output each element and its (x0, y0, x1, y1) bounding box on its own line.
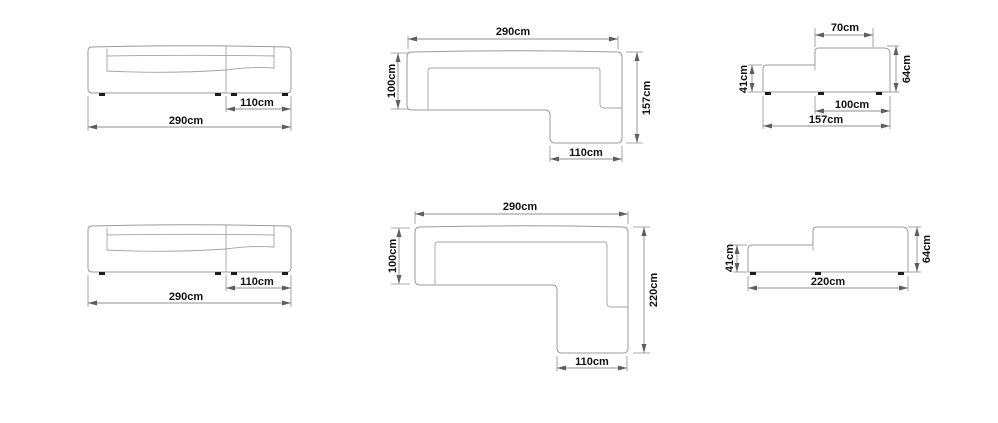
dim-seat-height: 41cm (738, 65, 762, 93)
seat-line (107, 247, 274, 252)
dim-label: 157cm (641, 81, 653, 115)
dim-label: 290cm (169, 115, 203, 127)
dim-label: 41cm (724, 244, 736, 272)
dim-label: 110cm (569, 147, 603, 159)
sofa-dimension-sheet: 110cm 290cm 290cm 100cm 1 (0, 0, 998, 423)
dim-chaise-width: 110cm (226, 275, 291, 307)
dim-label: 290cm (169, 291, 203, 303)
dim-total-width: 290cm (415, 201, 628, 224)
backrest-top-line (107, 234, 274, 235)
dim-label: 100cm (386, 64, 398, 98)
dim-back-height: 64cm (887, 46, 913, 92)
seat-inner-line (428, 68, 622, 110)
front-view-157: 110cm 290cm (88, 46, 291, 131)
dim-label: 70cm (831, 22, 859, 34)
dim-label: 41cm (738, 65, 750, 93)
seat-line (107, 68, 274, 73)
dim-label: 100cm (835, 99, 869, 111)
dim-label: 220cm (648, 273, 660, 307)
front-view-220: 110cm 290cm (88, 225, 291, 307)
side-view-220: 41cm 64cm 220cm (724, 227, 933, 291)
dim-depth-right: 220cm (633, 227, 660, 353)
dim-seat-depth: 100cm (815, 96, 890, 114)
dim-label: 100cm (387, 239, 399, 273)
dim-label: 64cm (901, 55, 913, 83)
dimension-drawing-canvas: 110cm 290cm 290cm 100cm 1 (0, 0, 998, 423)
dim-seat-height: 41cm (724, 244, 747, 272)
dim-label: 110cm (240, 276, 274, 288)
side-view-157: 70cm 64cm 41cm 100cm 157cm (738, 22, 913, 129)
dim-label: 64cm (921, 235, 933, 263)
sofa-top-outline (407, 51, 622, 143)
dim-label: 157cm (809, 114, 843, 126)
dim-label: 290cm (496, 26, 530, 38)
sofa-front-outline (88, 225, 291, 275)
dim-label: 110cm (575, 356, 609, 368)
sofa-front-outline (88, 46, 291, 96)
dim-chaise-width: 110cm (226, 96, 291, 131)
backrest-top-line (107, 55, 274, 56)
dim-depth-left: 100cm (387, 228, 410, 284)
sofa-side-outline (763, 48, 890, 95)
dim-label: 110cm (240, 97, 274, 109)
top-view-220: 290cm 100cm 220cm 110cm (387, 201, 660, 371)
dim-depth-left: 100cm (386, 53, 409, 109)
sofa-side-outline (748, 227, 908, 275)
dim-depth-right: 157cm (626, 52, 653, 143)
dim-total-depth: 220cm (748, 276, 908, 291)
dim-chaise-width: 110cm (550, 146, 622, 162)
dim-label: 220cm (811, 276, 845, 288)
dim-back-height: 64cm (908, 227, 933, 272)
dim-total-width: 290cm (408, 26, 618, 49)
dim-total-depth: 157cm (763, 96, 890, 129)
top-view-157: 290cm 100cm 157cm 110cm (386, 26, 653, 162)
dim-label: 290cm (503, 201, 537, 213)
seat-inner-line (435, 242, 628, 307)
dim-chaise-width: 110cm (557, 356, 627, 371)
dim-back-top-width: 70cm (815, 22, 873, 47)
sofa-top-outline (415, 226, 628, 353)
